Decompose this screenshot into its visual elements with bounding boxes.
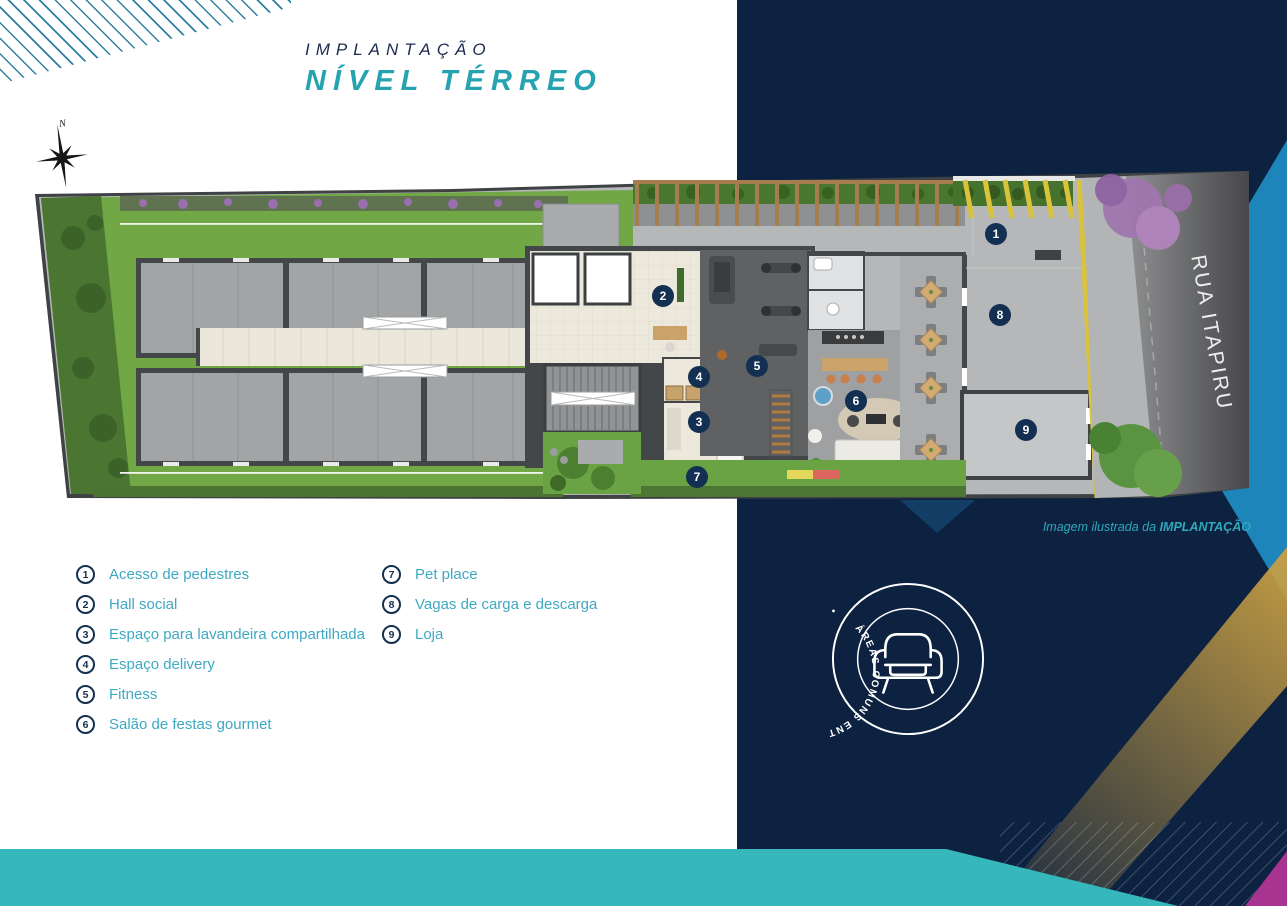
- marker-2: 2: [652, 285, 674, 307]
- legend-label-3: Espaço para lavandeira compartilhada: [109, 626, 365, 643]
- page-title: NÍVEL TÉRREO: [305, 65, 603, 98]
- spa-tub: [814, 387, 832, 405]
- legend-item-1: 1Acesso de pedestres: [76, 565, 365, 584]
- boundary-line-top: [120, 223, 544, 225]
- legend-number-7: 7: [382, 565, 401, 584]
- caption-prefix: Imagem ilustrada da: [1043, 520, 1160, 534]
- legend-label-9: Loja: [415, 626, 443, 643]
- marker-5: 5: [746, 355, 768, 377]
- elevator-1: [533, 254, 578, 304]
- marker-7: 7: [686, 466, 708, 488]
- legend-column-1: 1Acesso de pedestres 2Hall social 3Espaç…: [76, 565, 365, 734]
- marker-8: 8: [989, 304, 1011, 326]
- marker-4: 4: [688, 366, 710, 388]
- legend-label-1: Acesso de pedestres: [109, 566, 249, 583]
- legend-item-5: 5Fitness: [76, 685, 365, 704]
- fitness-room: [700, 250, 812, 456]
- hedge-bottom: [93, 486, 563, 497]
- legend-item-9: 9Loja: [382, 625, 597, 644]
- compass-star: N: [31, 118, 92, 190]
- legend-number-8: 8: [382, 595, 401, 614]
- title-block: IMPLANTAÇÃO NÍVEL TÉRREO: [305, 40, 603, 98]
- svg-text:7: 7: [694, 470, 701, 484]
- stair-garden: [543, 432, 641, 494]
- svg-text:4: 4: [696, 370, 703, 384]
- marker-6: 6: [845, 390, 867, 412]
- legend-label-6: Salão de festas gourmet: [109, 716, 272, 733]
- plan-caption: Imagem ilustrada da IMPLANTAÇÃO: [1043, 520, 1251, 534]
- pet-place: [631, 460, 966, 497]
- legend-item-8: 8Vagas de carga e descarga: [382, 595, 597, 614]
- compass-rose: N: [24, 118, 100, 190]
- svg-text:2: 2: [660, 289, 667, 303]
- legend-number-4: 4: [76, 655, 95, 674]
- legend-number-1: 1: [76, 565, 95, 584]
- bathrooms: [808, 252, 864, 330]
- unit-row-bottom: [136, 368, 556, 466]
- legend-column-2: 7Pet place 8Vagas de carga e descarga 9L…: [382, 565, 597, 644]
- legend-item-4: 4Espaço delivery: [76, 655, 365, 674]
- marker-1: 1: [985, 223, 1007, 245]
- patio-slab: [543, 204, 619, 248]
- brochure-page: IMPLANTAÇÃO NÍVEL TÉRREO N: [0, 0, 1287, 906]
- title-kicker: IMPLANTAÇÃO: [305, 40, 603, 60]
- hall-social-room: [530, 251, 702, 363]
- svg-text:6: 6: [853, 394, 860, 408]
- svg-text:1: 1: [993, 227, 1000, 241]
- legend-label-4: Espaço delivery: [109, 656, 215, 673]
- site-plan: RUA ITAPIRU 1 2 3 4: [33, 168, 1253, 502]
- elevator-2: [585, 254, 630, 304]
- legend-number-3: 3: [76, 625, 95, 644]
- legend-number-6: 6: [76, 715, 95, 734]
- legend-item-2: 2Hall social: [76, 595, 365, 614]
- legend-number-5: 5: [76, 685, 95, 704]
- stairwell: [545, 365, 640, 432]
- agility-bar-yellow: [787, 470, 813, 479]
- agility-bar-red: [813, 470, 839, 479]
- armchair-icon: [874, 634, 941, 692]
- svg-text:9: 9: [1023, 423, 1030, 437]
- legend-label-5: Fitness: [109, 686, 157, 703]
- pergola: [633, 180, 965, 226]
- legend-number-9: 9: [382, 625, 401, 644]
- svg-text:5: 5: [754, 359, 761, 373]
- legend-label-2: Hall social: [109, 596, 177, 613]
- svg-text:3: 3: [696, 415, 703, 429]
- boundary-line-bottom: [120, 472, 550, 474]
- legend-label-8: Vagas de carga e descarga: [415, 596, 597, 613]
- compass-north-label: N: [58, 118, 68, 130]
- reception-desk: [653, 326, 687, 340]
- legend-item-7: 7Pet place: [382, 565, 597, 584]
- legend-label-7: Pet place: [415, 566, 478, 583]
- legend-number-2: 2: [76, 595, 95, 614]
- marker-3: 3: [688, 411, 710, 433]
- caption-bold: IMPLANTAÇÃO: [1160, 520, 1251, 534]
- legend-item-6: 6Salão de festas gourmet: [76, 715, 365, 734]
- legend-item-3: 3Espaço para lavandeira compartilhada: [76, 625, 365, 644]
- marker-9: 9: [1015, 419, 1037, 441]
- furnished-areas-stamp: ÁREAS COMUNS ENTREGUES EQUIPADAS E DECOR…: [829, 580, 987, 738]
- svg-text:8: 8: [997, 308, 1004, 322]
